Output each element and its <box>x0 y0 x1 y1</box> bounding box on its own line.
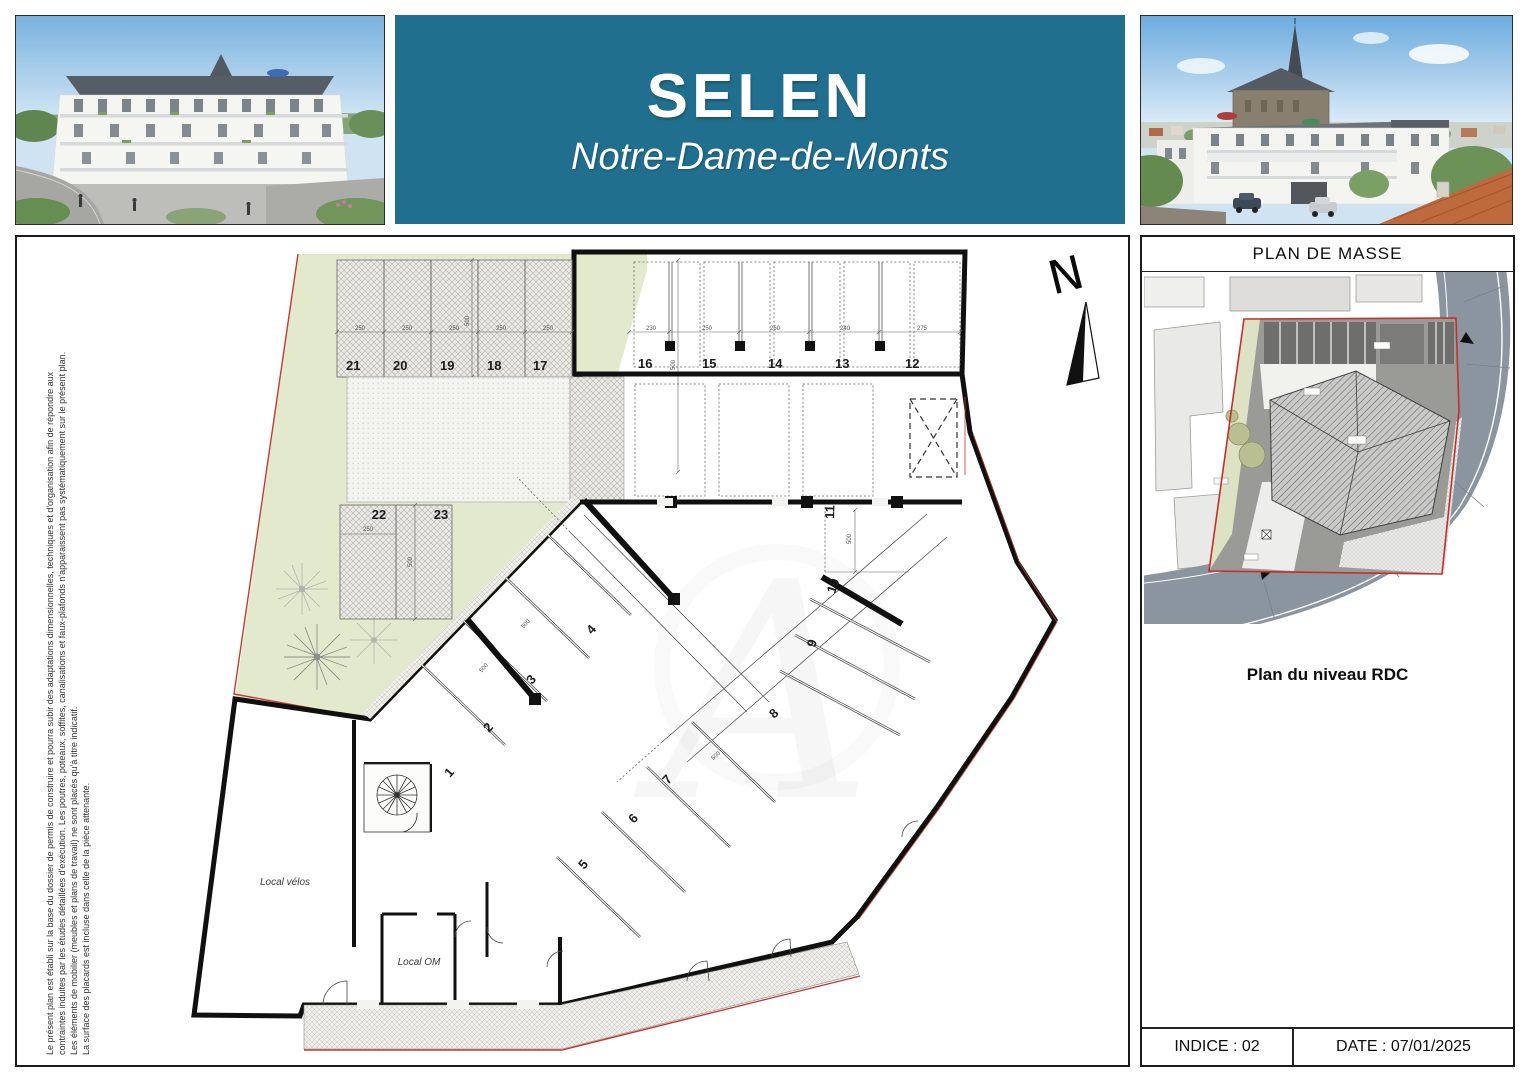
disclaimer-text: Le présent plan est établi sur la base d… <box>44 249 92 1055</box>
svg-text:15: 15 <box>702 356 716 371</box>
svg-text:500: 500 <box>671 359 677 370</box>
svg-text:250: 250 <box>496 326 507 332</box>
svg-text:240: 240 <box>840 326 851 332</box>
disclaimer-line: Le présent plan est établi sur la base d… <box>44 249 56 1055</box>
indice-cell: INDICE : 02 <box>1142 1029 1294 1065</box>
svg-text:20: 20 <box>393 358 407 373</box>
walkway-bottom <box>304 942 859 1049</box>
disclaimer-line: Les éléments de mobilier (meubles et pla… <box>68 249 80 1055</box>
svg-text:12: 12 <box>905 356 919 371</box>
cellar-bays <box>635 384 957 496</box>
svg-text:6: 6 <box>625 811 641 826</box>
svg-text:11: 11 <box>822 505 837 519</box>
north-arrow-icon: N <box>1043 245 1099 385</box>
disclaimer-line: contraintes induites par les études déta… <box>56 249 68 1055</box>
svg-text:250: 250 <box>449 326 460 332</box>
paved-court <box>347 377 570 502</box>
svg-text:23: 23 <box>434 507 448 522</box>
svg-text:14: 14 <box>768 356 783 371</box>
svg-text:250: 250 <box>363 527 374 533</box>
svg-text:260: 260 <box>770 326 781 332</box>
title-block-row: INDICE : 02 DATE : 07/01/2025 <box>1142 1027 1513 1065</box>
spiral-staircase <box>364 764 430 832</box>
svg-text:250: 250 <box>543 326 554 332</box>
svg-text:500: 500 <box>521 618 533 630</box>
disclaimer-line: La surface des placards est incluse dans… <box>80 249 92 1055</box>
floor-plan-frame: A 21 20 19 18 17 16 15 14 13 12 22 23 1 … <box>15 235 1130 1067</box>
date-cell: DATE : 07/01/2025 <box>1294 1029 1513 1065</box>
svg-text:500: 500 <box>465 315 471 326</box>
svg-text:250: 250 <box>402 326 413 332</box>
svg-text:500: 500 <box>847 533 853 544</box>
project-subtitle: Notre-Dame-de-Monts <box>571 136 949 179</box>
svg-text:18: 18 <box>487 358 501 373</box>
page: SELEN Notre-Dame-de-Monts <box>0 0 1528 1080</box>
parcel <box>1209 318 1462 574</box>
svg-text:250: 250 <box>702 326 713 332</box>
svg-text:N: N <box>1043 245 1089 306</box>
svg-text:230: 230 <box>646 326 657 332</box>
svg-text:22: 22 <box>372 507 386 522</box>
svg-text:19: 19 <box>440 358 454 373</box>
floor-plan-drawing: A 21 20 19 18 17 16 15 14 13 12 22 23 1 … <box>17 237 1128 1065</box>
svg-text:13: 13 <box>835 356 849 371</box>
label-local-om: Local OM <box>398 957 441 968</box>
svg-text:250: 250 <box>355 326 366 332</box>
level-title: Plan du niveau RDC <box>1142 665 1513 685</box>
svg-text:17: 17 <box>533 358 547 373</box>
svg-text:1: 1 <box>441 765 457 780</box>
svg-text:4: 4 <box>583 621 600 637</box>
watermark: A <box>634 519 892 868</box>
sidebar: PLAN DE MASSE <box>1140 235 1515 1067</box>
svg-text:21: 21 <box>346 358 360 373</box>
svg-text:275: 275 <box>917 326 928 332</box>
label-local-velos: Local vélos <box>260 877 310 888</box>
tree-icon <box>350 616 398 664</box>
render-right-illustration <box>1141 16 1512 224</box>
photo-building-render-left <box>15 15 385 225</box>
render-left-illustration <box>16 16 384 224</box>
project-title: SELEN <box>647 61 874 132</box>
plan-de-masse-title: PLAN DE MASSE <box>1142 237 1513 272</box>
svg-text:16: 16 <box>638 356 652 371</box>
site-plan-map <box>1144 272 1511 624</box>
ramp-dashed-square <box>910 399 957 477</box>
svg-text:500: 500 <box>479 662 491 674</box>
paver-band <box>570 377 624 502</box>
svg-text:500: 500 <box>408 556 414 567</box>
photo-building-render-right <box>1140 15 1513 225</box>
project-banner: SELEN Notre-Dame-de-Monts <box>395 15 1125 224</box>
svg-text:5: 5 <box>575 857 591 872</box>
